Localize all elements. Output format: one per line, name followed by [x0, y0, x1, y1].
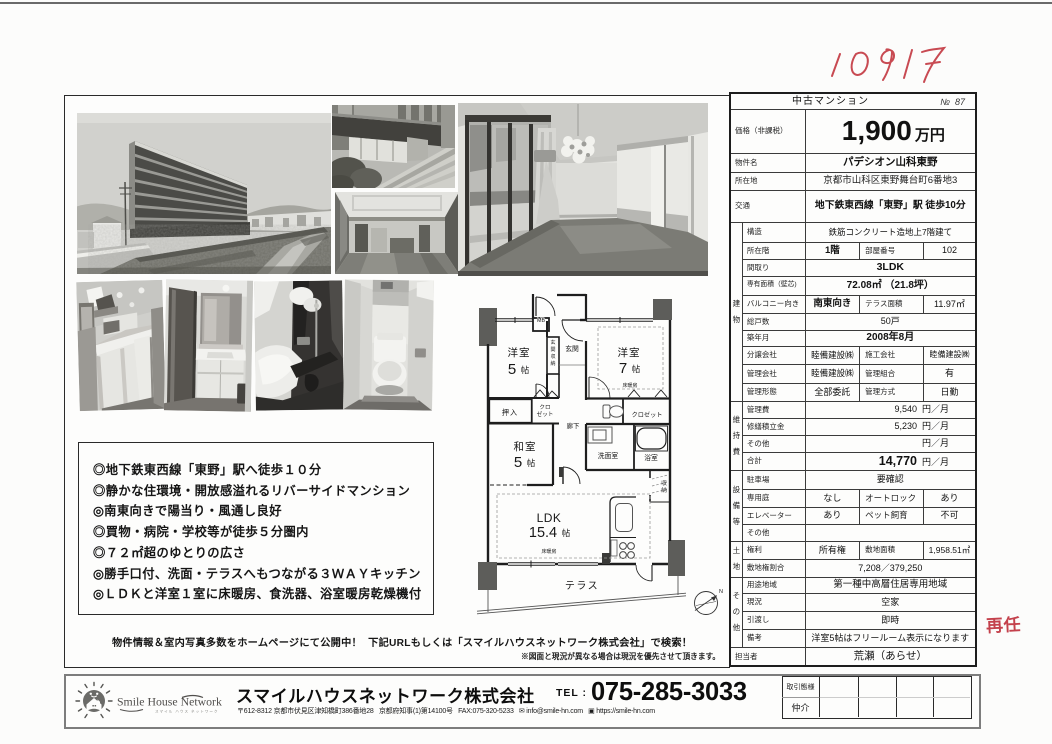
svg-text:15.4: 15.4 [529, 525, 557, 541]
svg-text:N: N [719, 589, 723, 595]
svg-text:7: 7 [619, 360, 627, 377]
svg-text:5: 5 [514, 454, 522, 471]
svg-text:押入: 押入 [502, 408, 518, 417]
svg-text:廊下: 廊下 [567, 421, 580, 430]
svg-text:納: 納 [661, 486, 667, 494]
svg-text:関: 関 [550, 347, 555, 353]
svg-text:和室: 和室 [514, 440, 537, 453]
svg-text:帖: 帖 [562, 528, 571, 538]
svg-text:納: 納 [550, 360, 555, 367]
svg-text:玄関: 玄関 [565, 344, 579, 353]
svg-text:ゼット: ゼット [537, 410, 554, 418]
svg-text:LDK: LDK [537, 511, 562, 525]
svg-text:帖: 帖 [632, 364, 641, 374]
svg-text:5: 5 [508, 361, 516, 378]
svg-text:洋室: 洋室 [508, 346, 531, 359]
svg-text:収: 収 [661, 480, 667, 487]
svg-text:玄: 玄 [550, 339, 555, 346]
svg-text:スマイル ハウス ネットワーク: スマイル ハウス ネットワーク [155, 709, 219, 714]
svg-text:浴室: 浴室 [644, 453, 658, 462]
svg-text:帖: 帖 [521, 365, 530, 375]
svg-text:クロ: クロ [539, 404, 550, 411]
svg-text:クロゼット: クロゼット [632, 411, 663, 419]
svg-text:テラス: テラス [565, 580, 599, 592]
svg-text:床暖房: 床暖房 [541, 548, 556, 555]
svg-text:MB: MB [537, 318, 545, 324]
svg-text:収: 収 [550, 353, 555, 360]
svg-text:洗面室: 洗面室 [598, 451, 619, 460]
svg-text:洋室: 洋室 [618, 346, 641, 359]
svg-text:Smile House Network: Smile House Network [117, 695, 222, 709]
svg-text:帖: 帖 [527, 458, 536, 468]
svg-text:床暖房: 床暖房 [622, 382, 637, 389]
